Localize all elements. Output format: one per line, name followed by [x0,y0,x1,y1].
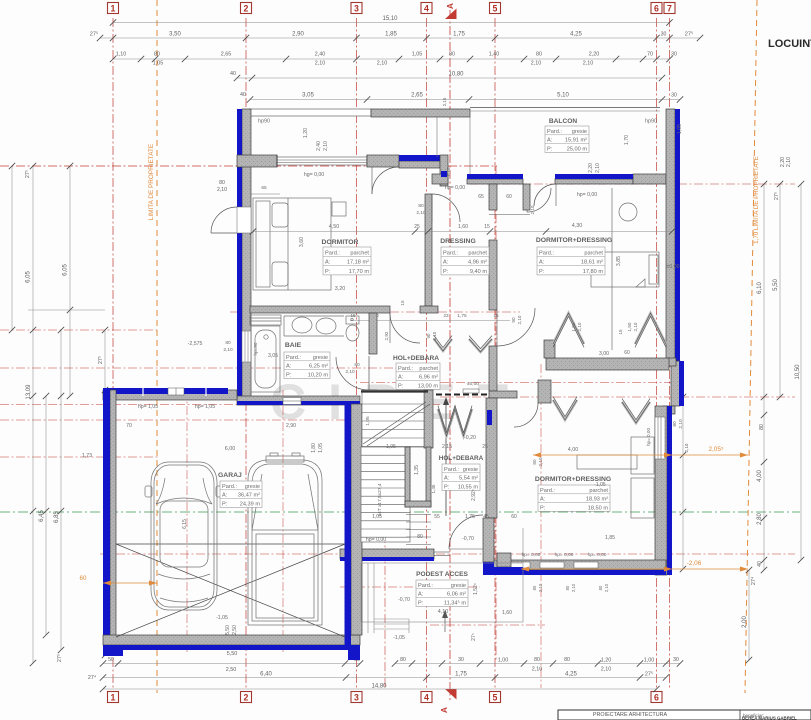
svg-text:80: 80 [564,657,570,663]
svg-text:4,00: 4,00 [568,447,579,453]
svg-text:-1,05: -1,05 [216,615,228,621]
svg-text:Pard.:: Pard.: [547,129,562,135]
svg-text:30: 30 [673,657,679,663]
svg-text:5,50: 5,50 [227,651,238,657]
svg-text:18,93 m²: 18,93 m² [586,497,608,503]
svg-text:60: 60 [506,194,512,200]
svg-text:2,10: 2,10 [571,583,576,592]
svg-text:80: 80 [536,52,542,58]
svg-text:5,50: 5,50 [773,279,779,291]
svg-text:1,85: 1,85 [605,535,615,541]
svg-text:80: 80 [672,421,678,427]
svg-text:A:: A: [443,260,449,266]
svg-text:6,15: 6,15 [182,519,188,529]
svg-text:36,47 m²: 36,47 m² [238,493,260,499]
svg-text:Pard.:: Pard.: [222,484,237,490]
svg-text:PODEST ACCES: PODEST ACCES [416,571,468,578]
svg-text:27⁴: 27⁴ [88,675,97,681]
svg-text:P:: P: [222,502,228,508]
svg-text:6,10: 6,10 [757,282,763,294]
svg-text:2,10: 2,10 [684,443,689,452]
svg-text:gresie: gresie [572,129,587,135]
svg-text:80: 80 [354,362,360,368]
svg-text:HOL+DEBARA: HOL+DEBARA [439,455,484,462]
svg-text:30: 30 [661,32,667,38]
svg-text:80: 80 [759,424,765,430]
svg-text:HOL+DEBARA: HOL+DEBARA [393,355,439,362]
svg-text:30: 30 [671,93,677,99]
svg-text:14T x17,5x27,4: 14T x17,5x27,4 [377,483,383,516]
svg-text:2,10: 2,10 [786,157,792,167]
svg-text:80: 80 [417,534,423,540]
svg-text:2: 2 [244,4,249,14]
svg-text:40: 40 [757,561,763,567]
svg-text:5,10: 5,10 [557,93,569,99]
svg-text:gresie: gresie [245,484,260,490]
svg-text:6,25 m²: 6,25 m² [309,364,328,370]
svg-text:Pard.:: Pard.: [286,355,301,361]
svg-text:6,45: 6,45 [39,510,45,522]
svg-text:1,05: 1,05 [412,52,423,58]
svg-text:27⁵: 27⁵ [774,192,780,200]
svg-text:P:: P: [325,269,331,275]
svg-text:2,10: 2,10 [315,61,326,67]
svg-text:hp= 0,00: hp= 0,00 [366,537,386,543]
svg-text:LOCUINT: LOCUINT [768,38,811,50]
svg-text:1,70 LIMITA DE PROPRIETATE: 1,70 LIMITA DE PROPRIETATE [753,156,760,244]
svg-text:hp90: hp90 [258,119,270,125]
svg-text:18,61 m²: 18,61 m² [581,260,603,266]
svg-text:4,50: 4,50 [329,224,340,230]
svg-text:9,40 m: 9,40 m [470,269,487,275]
svg-text:1,70: 1,70 [624,135,630,145]
svg-text:Pard.:: Pard.: [443,250,458,256]
svg-text:80: 80 [400,657,406,663]
svg-text:65: 65 [261,185,267,191]
svg-text:2,15: 2,15 [442,97,447,106]
svg-text:2,92⁵: 2,92⁵ [471,489,477,501]
svg-text:6: 6 [654,693,659,703]
svg-text:6,00: 6,00 [225,446,236,452]
svg-text:5: 5 [493,693,498,703]
svg-text:27⁴: 27⁴ [751,576,757,585]
svg-text:80: 80 [418,203,424,209]
svg-text:50: 50 [108,657,114,663]
svg-text:1,35: 1,35 [414,465,420,475]
svg-text:A:: A: [444,476,450,482]
svg-text:BALCON: BALCON [549,118,577,125]
svg-text:80: 80 [565,585,570,590]
svg-text:1,75: 1,75 [465,514,475,520]
svg-text:27⁵: 27⁵ [57,654,63,662]
svg-text:80: 80 [449,52,455,58]
svg-text:25: 25 [482,444,488,450]
svg-text:A:: A: [398,375,404,381]
svg-text:A:: A: [286,364,292,370]
svg-text:A:: A: [540,497,546,503]
svg-text:6,05: 6,05 [63,264,69,276]
svg-text:hp=90: hp=90 [253,342,258,355]
svg-text:P:: P: [418,601,424,607]
svg-text:10,80: 10,80 [448,72,464,78]
svg-text:6,96 m²: 6,96 m² [419,375,438,381]
svg-text:-2,575: -2,575 [188,341,203,347]
svg-text:P:: P: [443,269,449,275]
svg-text:2,10: 2,10 [530,205,535,214]
svg-text:DRESSING: DRESSING [440,238,476,245]
svg-text:2,10: 2,10 [532,667,543,673]
svg-text:80: 80 [219,180,225,186]
svg-text:2,50: 2,50 [226,667,237,673]
svg-text:P:: P: [539,269,545,275]
svg-text:80: 80 [534,657,540,663]
svg-text:2,40: 2,40 [316,141,322,151]
svg-text:hp90: hp90 [645,119,657,125]
svg-text:-1,05: -1,05 [393,635,405,641]
svg-text:3,20: 3,20 [335,286,346,292]
svg-text:18,50 m: 18,50 m [588,506,609,512]
svg-text:A:: A: [539,260,545,266]
svg-text:25,00 m: 25,00 m [567,147,588,153]
svg-text:30: 30 [671,52,677,58]
svg-text:-2,06: -2,06 [687,560,702,567]
svg-text:Pard.:: Pard.: [539,250,554,256]
svg-text:60: 60 [511,514,517,520]
svg-text:80: 80 [532,585,537,590]
svg-text:1,50: 1,50 [627,322,632,331]
svg-text:A:: A: [547,138,553,144]
svg-text:70: 70 [647,52,653,58]
svg-text:DORMITOR+DRESSING: DORMITOR+DRESSING [536,237,612,244]
svg-text:2,10: 2,10 [538,457,543,466]
svg-text:2,10: 2,10 [217,187,227,193]
svg-text:1,00: 1,00 [498,658,509,664]
svg-text:P:: P: [444,485,450,491]
svg-text:P:: P: [547,147,553,153]
svg-text:gresie: gresie [463,467,478,473]
svg-text:2,80: 2,80 [757,513,763,525]
svg-text:A: A [445,3,455,9]
svg-text:DORMITOR: DORMITOR [322,239,359,246]
svg-text:2,20: 2,20 [589,52,600,58]
svg-text:Pard.:: Pard.: [444,467,459,473]
svg-text:±0,00: ±0,00 [467,381,479,387]
svg-text:1,00: 1,00 [644,658,655,664]
svg-text:2,00: 2,00 [742,616,748,628]
svg-text:1,40: 1,40 [489,52,500,58]
svg-text:gresie: gresie [313,355,328,361]
svg-text:1,05: 1,05 [372,514,382,520]
svg-text:-1,05: -1,05 [594,482,606,488]
svg-text:Pard.:: Pard.: [540,488,555,494]
svg-text:4,25: 4,25 [570,32,582,38]
svg-text:gresie: gresie [451,583,466,589]
svg-text:2,20: 2,20 [588,163,594,173]
svg-text:P:: P: [286,373,292,379]
svg-text:55: 55 [434,514,440,520]
svg-text:1: 1 [111,693,116,703]
svg-text:24,39 m: 24,39 m [240,502,261,508]
svg-text:15: 15 [493,313,499,318]
svg-text:1,50: 1,50 [571,322,576,331]
svg-text:2,10: 2,10 [323,141,329,151]
svg-text:7: 7 [667,4,672,14]
svg-text:Pard.:: Pard.: [398,366,413,372]
svg-text:2: 2 [244,693,249,703]
svg-text:1,73: 1,73 [82,453,92,459]
svg-text:3: 3 [354,693,359,703]
svg-text:parchet: parchet [350,250,369,256]
svg-text:2,05⁵: 2,05⁵ [708,446,723,453]
svg-text:3,00: 3,00 [599,351,609,357]
svg-text:2,10: 2,10 [633,322,638,331]
svg-text:2,10: 2,10 [345,369,355,375]
svg-text:27⁵: 27⁵ [471,633,477,641]
svg-text:70: 70 [126,423,132,429]
svg-text:6: 6 [654,4,659,14]
svg-text:80: 80 [598,585,603,590]
svg-text:1,05: 1,05 [153,61,164,67]
svg-text:A:: A: [222,493,228,499]
svg-text:4: 4 [424,4,429,14]
svg-text:13,00 m: 13,00 m [418,384,439,390]
svg-text:60: 60 [80,575,87,582]
svg-text:2,10: 2,10 [432,331,437,340]
svg-text:hp= 1,05: hp= 1,05 [195,404,215,410]
svg-text:hp= 0,00: hp= 0,00 [588,552,607,558]
svg-text:1: 1 [111,4,116,14]
svg-text:2,10: 2,10 [678,419,684,429]
svg-text:10,50: 10,50 [795,364,801,380]
svg-text:6,40: 6,40 [260,672,272,678]
svg-text:Pard.:: Pard.: [418,583,433,589]
svg-text:2,10: 2,10 [601,667,612,673]
svg-text:2,65: 2,65 [411,93,423,99]
svg-text:3,60: 3,60 [299,237,305,247]
svg-text:5: 5 [493,4,498,14]
svg-text:17,80 m: 17,80 m [583,269,604,275]
svg-text:65: 65 [478,194,484,200]
svg-text:2,50: 2,50 [232,625,238,635]
svg-text:4,30: 4,30 [572,223,583,229]
svg-text:40: 40 [230,71,236,77]
svg-text:A:: A: [325,260,331,266]
svg-text:15,10: 15,10 [382,16,398,22]
svg-text:2,10: 2,10 [577,322,582,331]
svg-text:hp= 0,00: hp= 0,00 [555,552,574,558]
svg-text:-0,20: -0,20 [464,435,476,441]
svg-text:3,05: 3,05 [268,353,278,359]
svg-text:A: A [439,707,449,713]
svg-text:27⁵: 27⁵ [645,672,653,678]
svg-text:15: 15 [484,224,490,230]
svg-text:3,05: 3,05 [302,93,314,99]
svg-text:hp= 0,00: hp= 0,00 [577,192,597,198]
svg-text:14,80: 14,80 [371,684,387,690]
svg-text:1,45: 1,45 [431,484,436,493]
svg-text:6,85: 6,85 [54,511,60,523]
svg-text:27⁵: 27⁵ [98,356,104,364]
svg-text:2,10: 2,10 [517,315,522,324]
svg-text:3,85: 3,85 [616,256,622,266]
svg-text:2,10: 2,10 [377,61,388,67]
svg-text:1,05: 1,05 [365,416,371,426]
svg-text:1,20: 1,20 [601,658,612,664]
svg-text:parchet: parchet [468,250,487,256]
svg-text:15: 15 [618,329,623,335]
svg-text:hp= 1,05: hp= 1,05 [138,404,158,410]
svg-text:2,90: 2,90 [292,32,304,38]
svg-text:-0,70: -0,70 [462,536,474,542]
svg-text:1,52⁵: 1,52⁵ [473,583,479,595]
svg-text:P:: P: [398,384,404,390]
svg-text:23: 23 [443,313,449,318]
svg-text:27⁵: 27⁵ [90,31,99,38]
svg-text:hp= 0,00: hp= 0,00 [522,552,541,558]
svg-text:2,10: 2,10 [595,163,601,173]
svg-text:2,10: 2,10 [538,583,543,592]
svg-text:2,40: 2,40 [315,52,326,58]
svg-text:4,10: 4,10 [438,609,449,615]
svg-text:80: 80 [154,52,160,58]
svg-text:1,05: 1,05 [386,444,396,450]
svg-text:90: 90 [511,317,516,323]
svg-text:1,10: 1,10 [116,52,127,58]
svg-text:2,10: 2,10 [446,167,451,176]
svg-text:4: 4 [424,693,429,703]
svg-text:1,05: 1,05 [677,124,683,134]
svg-text:80: 80 [225,340,231,346]
svg-text:1,75: 1,75 [457,313,467,319]
svg-text:parchet: parchet [589,488,608,494]
svg-text:A:: A: [418,592,424,598]
svg-text:2,10: 2,10 [604,583,609,592]
svg-text:45: 45 [483,514,489,520]
svg-text:17,70 m: 17,70 m [349,269,370,275]
svg-text:3,50: 3,50 [169,32,181,38]
svg-text:3: 3 [354,4,359,14]
svg-text:60: 60 [624,350,630,356]
svg-text:1,80: 1,80 [311,443,317,453]
svg-text:4,96 m²: 4,96 m² [468,260,487,266]
svg-text:beneficiar:: beneficiar: [743,713,764,718]
svg-text:1,75: 1,75 [453,32,465,38]
svg-text:2,10: 2,10 [531,61,542,67]
svg-text:6,05: 6,05 [26,271,32,283]
svg-text:30: 30 [458,657,464,663]
svg-text:1,85: 1,85 [385,32,397,38]
svg-text:80: 80 [532,459,537,465]
svg-text:1,60: 1,60 [458,224,468,230]
svg-text:40: 40 [240,92,246,98]
svg-text:-0,70: -0,70 [398,597,410,603]
svg-text:15: 15 [400,300,405,306]
svg-text:2,10: 2,10 [416,210,426,216]
svg-text:27⁵: 27⁵ [685,31,694,38]
svg-text:hg= 0,00: hg= 0,00 [304,172,324,178]
svg-text:13,09: 13,09 [26,384,32,400]
svg-text:1,75: 1,75 [455,672,467,678]
svg-text:parchet: parchet [584,250,603,256]
svg-text:±0,00: ±0,00 [667,264,680,270]
svg-text:LIMITA DE PROPRIETATE: LIMITA DE PROPRIETATE [148,144,155,220]
svg-text:5,54 m²: 5,54 m² [459,476,478,482]
svg-text:GARAJ: GARAJ [218,472,242,479]
svg-text:2,10: 2,10 [583,61,594,67]
svg-text:P:: P: [540,506,546,512]
svg-text:2,10: 2,10 [223,347,233,353]
svg-text:5,50: 5,50 [225,625,231,635]
svg-text:4,25: 4,25 [565,672,577,678]
svg-text:2,15: 2,15 [442,444,452,450]
svg-text:6,06 m²: 6,06 m² [447,592,466,598]
svg-text:BAIE: BAIE [285,342,302,349]
svg-text:90: 90 [426,333,431,338]
svg-text:15: 15 [350,313,356,318]
svg-text:17,18 m²: 17,18 m² [347,260,369,266]
svg-text:4,00: 4,00 [757,470,763,482]
svg-text:2,90: 2,90 [286,423,296,429]
svg-text:PROIECTARE ARHITECTURA: PROIECTARE ARHITECTURA [593,712,668,718]
svg-text:27⁵: 27⁵ [25,170,31,178]
svg-text:Pard.:: Pard.: [325,250,340,256]
svg-text:hp= 0,00: hp= 0,00 [445,185,465,191]
svg-text:1,60: 1,60 [502,610,512,616]
svg-text:1,20: 1,20 [303,128,309,138]
svg-text:10,20 m: 10,20 m [308,373,329,379]
svg-text:15,91 m²: 15,91 m² [565,138,587,144]
svg-text:parchet: parchet [419,366,438,372]
svg-text:2,65: 2,65 [221,52,232,58]
svg-text:1,05: 1,05 [318,443,324,453]
svg-text:2,92: 2,92 [384,331,389,340]
svg-text:11,34⁵ m: 11,34⁵ m [444,600,466,607]
